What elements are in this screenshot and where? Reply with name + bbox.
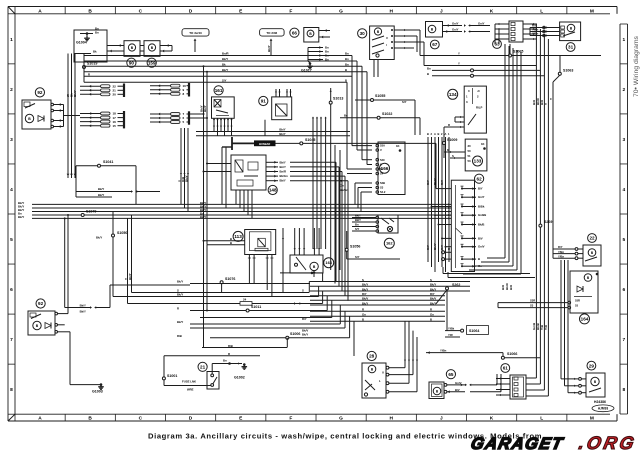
svg-text:Bk/Y: Bk/Y [430, 301, 436, 305]
svg-text:161: 161 [215, 88, 223, 93]
svg-text:Bn: Bn [345, 63, 349, 67]
svg-text:4: 4 [622, 187, 625, 193]
svg-text:S/Y: S/Y [355, 255, 360, 259]
svg-text:S3: S3 [530, 304, 534, 308]
svg-text:S/Y: S/Y [222, 79, 227, 83]
svg-text:S/Y: S/Y [426, 180, 430, 185]
svg-text:S1055: S1055 [375, 94, 385, 98]
svg-text:Y/R: Y/R [448, 333, 453, 337]
svg-text:28: 28 [369, 354, 375, 359]
svg-text:C: C [139, 416, 143, 422]
svg-text:1: 1 [10, 37, 13, 43]
svg-text:92: 92 [37, 90, 43, 95]
svg-text:TO 2/36: TO 2/36 [266, 31, 277, 35]
svg-text:Bk/Gn: Bk/Gn [340, 188, 349, 192]
svg-text:53B: 53B [380, 181, 385, 185]
svg-text:S1013: S1013 [333, 97, 343, 101]
svg-text:Y/Bk: Y/Bk [448, 327, 455, 331]
svg-text:Bk/V: Bk/V [302, 328, 308, 332]
svg-text:S1079: S1079 [86, 210, 96, 214]
svg-text:53: 53 [468, 159, 472, 163]
svg-text:B/V: B/V [478, 236, 483, 240]
svg-text:Bn: Bn [223, 359, 227, 363]
svg-text:A: A [434, 132, 436, 136]
svg-text:Bk/Y: Bk/Y [222, 57, 228, 61]
svg-text:S1050: S1050 [117, 231, 127, 235]
svg-text:91: 91 [261, 99, 267, 104]
svg-text:67: 67 [432, 42, 438, 47]
svg-text:B/V: B/V [455, 388, 460, 392]
svg-text:H: H [389, 8, 393, 14]
svg-text:Bk/Y: Bk/Y [185, 175, 189, 182]
svg-text:S1011: S1011 [251, 305, 261, 309]
svg-text:5: 5 [622, 237, 625, 243]
svg-text:A: A [38, 8, 42, 14]
svg-text:5: 5 [10, 237, 13, 243]
svg-text:Bk/B: Bk/B [478, 223, 484, 227]
svg-text:Bn: Bn [95, 31, 99, 35]
svg-text:S: S [302, 289, 304, 293]
svg-text:Bn: Bn [345, 52, 349, 56]
svg-text:Bn/Y: Bn/Y [280, 165, 287, 169]
svg-text:Bk/Y: Bk/Y [177, 280, 183, 284]
svg-text:R/Y: R/Y [430, 292, 435, 296]
svg-text:S1076: S1076 [225, 277, 235, 281]
svg-text:Y/Bn: Y/Bn [558, 254, 564, 258]
svg-text:B/Bk: B/Bk [478, 205, 485, 209]
svg-text:S/Y: S/Y [426, 245, 430, 250]
svg-text:Bk/Y: Bk/Y [302, 333, 308, 337]
svg-text:Bn: Bn [355, 223, 359, 227]
svg-text:R/Y: R/Y [302, 317, 307, 321]
svg-text:D: D [189, 8, 193, 14]
svg-text:62: 62 [477, 176, 483, 181]
svg-text:Gn/V: Gn/V [455, 381, 462, 385]
svg-text:Bn/R: Bn/R [280, 170, 287, 174]
svg-text:Bk/Y: Bk/Y [96, 236, 102, 240]
svg-text:S1041: S1041 [103, 160, 113, 164]
svg-text:G1002: G1002 [234, 376, 245, 380]
svg-text:2: 2 [10, 87, 13, 93]
svg-text:Bk/Y: Bk/Y [430, 287, 436, 291]
svg-text:S1066: S1066 [507, 352, 517, 356]
svg-text:B: B [362, 318, 364, 322]
svg-text:21: 21 [200, 364, 206, 369]
svg-text:53-2: 53-2 [380, 190, 386, 194]
svg-text:Bk/Y: Bk/Y [433, 178, 437, 185]
svg-text:Gn: Gn [340, 184, 344, 188]
svg-text:Bk/Y: Bk/Y [222, 68, 228, 72]
svg-text:G1003: G1003 [92, 390, 103, 394]
svg-text:1: 1 [622, 37, 625, 43]
svg-text:K: K [490, 8, 494, 14]
svg-text:G1004: G1004 [76, 41, 87, 45]
svg-text:M: M [590, 8, 594, 14]
svg-text:Y/R: Y/R [544, 324, 548, 330]
svg-text:1K: 1K [481, 142, 485, 146]
svg-text:Bk/Y: Bk/Y [355, 218, 361, 222]
svg-text:Gn/Bk: Gn/Bk [478, 213, 487, 217]
svg-text:Y: Y [458, 52, 460, 56]
svg-text:B: B [427, 72, 429, 76]
svg-text:WRE: WRE [187, 388, 194, 392]
svg-text:B: B [230, 241, 232, 245]
svg-text:Bk/Y: Bk/Y [18, 215, 24, 219]
svg-text:Bk/Y: Bk/Y [177, 320, 183, 324]
svg-text:BUSBAR: BUSBAR [259, 142, 270, 146]
svg-text:M: M [590, 416, 594, 422]
svg-text:Y: Y [544, 103, 548, 105]
svg-text:Y/Bn: Y/Bn [532, 32, 539, 36]
svg-text:S/Y: S/Y [402, 100, 407, 104]
svg-text:22: 22 [589, 236, 595, 241]
svg-text:C: C [139, 8, 143, 14]
svg-text:B: B [438, 132, 440, 136]
svg-text:S4: S4 [380, 172, 384, 176]
svg-text:TO 3c/43: TO 3c/43 [189, 31, 202, 35]
svg-text:S1064: S1064 [469, 329, 479, 333]
svg-text:Bk/Y: Bk/Y [128, 273, 132, 280]
svg-text:S1063: S1063 [563, 69, 573, 73]
svg-text:Bk/Y: Bk/Y [267, 45, 271, 52]
svg-text:113: 113 [234, 234, 242, 239]
svg-text:8: 8 [10, 387, 13, 393]
svg-text:Bk/Y: Bk/Y [203, 105, 207, 112]
svg-text:K: K [490, 416, 494, 422]
svg-text:R/LP: R/LP [476, 106, 483, 110]
svg-text:H: H [389, 416, 393, 422]
svg-text:2: 2 [622, 87, 625, 93]
svg-text:162: 162 [386, 241, 393, 246]
svg-text:Bk/T: Bk/T [355, 214, 361, 218]
svg-text:Bk/Y: Bk/Y [80, 310, 86, 314]
svg-text:Bk/Y: Bk/Y [98, 187, 104, 191]
svg-text:B/Y: B/Y [478, 187, 483, 191]
svg-text:70• Wiring diagrams: 70• Wiring diagrams [633, 35, 640, 97]
svg-text:S1006: S1006 [290, 332, 300, 336]
svg-text:U: U [386, 36, 388, 40]
svg-text:29: 29 [589, 363, 595, 368]
svg-text:81: 81 [380, 167, 383, 171]
svg-text:Gn/Y: Gn/Y [452, 22, 459, 26]
svg-text:1K: 1K [396, 144, 400, 148]
svg-text:V: V [380, 148, 382, 152]
svg-text:H24386: H24386 [594, 400, 606, 404]
svg-text:B: B [345, 79, 347, 83]
svg-text:50: 50 [468, 149, 472, 153]
svg-text:FUSE LNK: FUSE LNK [182, 380, 196, 384]
svg-text:B: B [430, 318, 432, 322]
svg-text:G: G [339, 416, 343, 422]
svg-text:53R: 53R [575, 299, 580, 303]
svg-text:D: D [189, 416, 193, 422]
svg-text:S3R: S3R [530, 299, 535, 303]
svg-text:•0: •0 [477, 89, 480, 93]
svg-text:Bk/Y: Bk/Y [200, 215, 206, 219]
svg-text:L: L [379, 379, 381, 383]
svg-text:Gn/Y: Gn/Y [452, 28, 459, 32]
svg-text:B/R: B/R [509, 284, 513, 290]
svg-text:S3: S3 [380, 186, 384, 190]
svg-text:B: B [345, 68, 347, 72]
svg-text:U: U [382, 371, 384, 375]
svg-text:Bk/Y: Bk/Y [80, 304, 86, 308]
svg-text:R: R [448, 123, 450, 127]
svg-text:S: S [362, 278, 364, 282]
svg-text:65: 65 [448, 372, 454, 377]
svg-text:S1045: S1045 [305, 138, 315, 142]
svg-text:Bk/Y: Bk/Y [98, 193, 104, 197]
svg-text:R/Y: R/Y [440, 245, 444, 250]
svg-text:31: 31 [568, 45, 574, 50]
svg-text:S262: S262 [452, 283, 460, 287]
svg-text:8: 8 [622, 387, 625, 393]
svg-text:F: F [289, 8, 292, 14]
svg-text:3: 3 [622, 137, 625, 143]
svg-text:L: L [540, 416, 543, 422]
svg-text:R/B: R/B [177, 334, 182, 338]
svg-text:163: 163 [325, 260, 332, 265]
svg-text:133: 133 [474, 159, 482, 164]
svg-text:Y/Bn: Y/Bn [558, 250, 564, 254]
svg-text:15: 15 [113, 124, 117, 128]
svg-text:148: 148 [269, 188, 277, 193]
svg-text:Bn: Bn [345, 57, 349, 61]
svg-text:30: 30 [468, 144, 472, 148]
svg-text:51: 51 [468, 154, 472, 158]
svg-text:J: J [440, 8, 443, 14]
svg-text:AJM93: AJM93 [598, 407, 609, 411]
svg-text:Y: Y [549, 98, 553, 100]
svg-text:S1022: S1022 [382, 112, 392, 116]
svg-text:92: 92 [38, 301, 44, 306]
svg-text:Bk/Y: Bk/Y [177, 293, 183, 297]
svg-text:S1065: S1065 [513, 50, 523, 54]
svg-text:53A: 53A [380, 144, 385, 148]
svg-text:Y/Bn: Y/Bn [440, 349, 447, 353]
svg-text:30: 30 [360, 31, 366, 36]
svg-text:Bk/Y: Bk/Y [362, 301, 368, 305]
svg-text:F: F [289, 416, 292, 422]
svg-text:Bk/Y: Bk/Y [280, 179, 286, 183]
svg-text:Y: Y [458, 62, 460, 66]
svg-text:S269: S269 [544, 220, 552, 224]
svg-text:Bk/V: Bk/V [362, 297, 368, 301]
svg-text:S/Y: S/Y [355, 227, 360, 231]
svg-text:R/Y: R/Y [440, 180, 444, 185]
svg-text:Bk/Y: Bk/Y [280, 160, 286, 164]
svg-text:6: 6 [10, 287, 13, 293]
svg-text:134: 134 [449, 92, 457, 97]
svg-text:G: G [339, 8, 343, 14]
svg-text:R: R [228, 352, 230, 356]
svg-text:Bk/Y: Bk/Y [430, 283, 436, 287]
svg-text:Bk/Y: Bk/Y [362, 283, 368, 287]
svg-text:Bk/Gn: Bk/Gn [280, 174, 289, 178]
svg-text:4: 4 [10, 187, 13, 193]
svg-text:R: R [430, 308, 432, 312]
svg-text:53C: 53C [380, 158, 385, 162]
svg-text:Gn/Y: Gn/Y [478, 195, 485, 199]
svg-text:Gn: Gn [430, 313, 434, 317]
svg-text:B: B [88, 8, 92, 14]
svg-text:Bk/Y: Bk/Y [362, 287, 368, 291]
svg-text:A: A [445, 132, 447, 136]
svg-text:S: S [430, 278, 432, 282]
svg-text:R/Y: R/Y [362, 292, 367, 296]
svg-text:Bn/R: Bn/R [222, 52, 229, 56]
svg-text:R: R [88, 72, 90, 76]
svg-text:20: 20 [113, 93, 117, 97]
svg-text:Bk/Y: Bk/Y [433, 243, 437, 250]
svg-text:53: 53 [575, 304, 578, 308]
svg-text:S1019: S1019 [87, 62, 97, 66]
svg-text:.ORG: .ORG [577, 433, 638, 452]
svg-text:Bk/Y: Bk/Y [73, 90, 77, 97]
svg-text:61: 61 [503, 366, 509, 371]
svg-text:R/Y: R/Y [558, 245, 563, 249]
svg-text:3: 3 [10, 137, 13, 143]
svg-text:6: 6 [622, 287, 625, 293]
svg-text:24: 24 [243, 298, 247, 302]
svg-text:A: A [38, 416, 42, 422]
svg-text:S: S [452, 154, 454, 158]
svg-text:S1056: S1056 [350, 245, 360, 249]
svg-text:Bk/V: Bk/V [430, 297, 436, 301]
svg-text:7: 7 [622, 337, 625, 343]
svg-text:Gn/Y: Gn/Y [478, 22, 485, 26]
svg-text:7: 7 [10, 337, 13, 343]
svg-text:66: 66 [292, 30, 298, 35]
svg-text:L: L [540, 8, 543, 14]
svg-text:B: B [478, 257, 480, 261]
svg-text:J: J [440, 416, 443, 422]
svg-text:R: R [177, 307, 179, 311]
svg-text:S: S [380, 163, 382, 167]
svg-text:Bn: Bn [427, 67, 431, 71]
svg-text:164: 164 [581, 317, 589, 322]
svg-text:Gn/V: Gn/V [478, 245, 485, 249]
svg-text:GARAGET: GARAGET [469, 434, 566, 452]
svg-text:Bk: Bk [93, 50, 97, 54]
svg-text:Gn: Gn [362, 313, 366, 317]
svg-text:B: B [88, 416, 92, 422]
svg-text:R: R [362, 308, 364, 312]
svg-text:S1001: S1001 [167, 374, 177, 378]
svg-text:Bk: Bk [222, 63, 226, 67]
svg-text:Bn: Bn [344, 114, 348, 118]
svg-text:B: B [427, 132, 429, 136]
